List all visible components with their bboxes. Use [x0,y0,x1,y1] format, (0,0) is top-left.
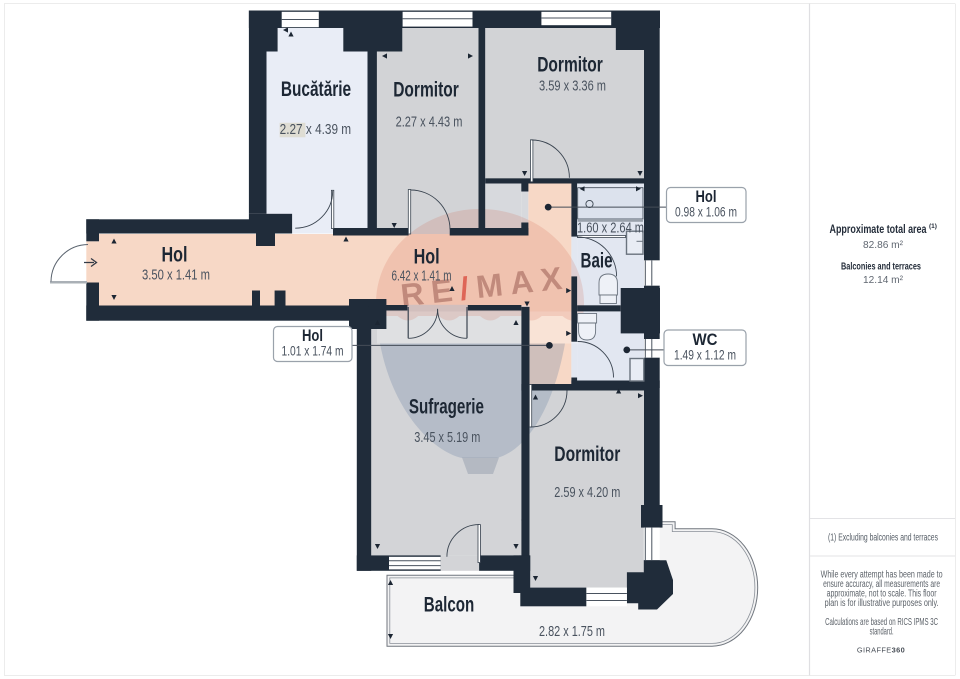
svg-text:6.42 x 1.41 m: 6.42 x 1.41 m [392,269,452,285]
svg-text:Approximate total area: Approximate total area [830,222,927,236]
svg-text:Dormitor: Dormitor [537,54,603,77]
svg-text:Baie: Baie [581,250,613,273]
svg-text:82.86 m²: 82.86 m² [863,239,903,251]
svg-text:Balconies and terraces: Balconies and terraces [841,261,921,273]
svg-text:Hol: Hol [162,244,188,267]
svg-text:Balcon: Balcon [424,594,475,617]
svg-text:Hol: Hol [302,327,323,345]
svg-text:Dormitor: Dormitor [393,79,459,102]
svg-text:3.50 x 1.41 m: 3.50 x 1.41 m [142,268,210,284]
svg-text:plan is for illustrative purpo: plan is for illustrative purposes only. [825,598,939,609]
svg-text:Hol: Hol [696,188,717,206]
svg-text:Dormitor: Dormitor [554,443,620,466]
svg-text:3.45 x 5.19 m: 3.45 x 5.19 m [414,430,480,446]
svg-text:12.14 m²: 12.14 m² [863,274,903,286]
svg-text:1.01 x 1.74 m: 1.01 x 1.74 m [282,344,344,359]
svg-text:2.59 x 4.20 m: 2.59 x 4.20 m [554,485,620,501]
svg-text:GIRAFFE360: GIRAFFE360 [857,646,905,655]
svg-text:1.60 x 2.64 m: 1.60 x 2.64 m [577,221,644,237]
svg-text:2.27 x 4.43 m: 2.27 x 4.43 m [396,115,463,131]
svg-text:Hol: Hol [414,246,440,269]
svg-text:WC: WC [693,331,718,349]
svg-text:(1) Excluding balconies and te: (1) Excluding balconies and terraces [828,533,938,544]
svg-text:2.27 x 4.39 m: 2.27 x 4.39 m [280,122,352,138]
svg-text:standard.: standard. [870,626,894,637]
svg-text:0.98 x 1.06 m: 0.98 x 1.06 m [675,205,737,220]
svg-text:1.49 x 1.12 m: 1.49 x 1.12 m [674,348,736,363]
svg-text:Bucătărie: Bucătărie [281,78,351,101]
svg-text:(1): (1) [929,223,937,230]
svg-text:2.82 x 1.75 m: 2.82 x 1.75 m [539,624,605,640]
svg-text:Sufragerie: Sufragerie [409,396,484,419]
svg-text:3.59 x 3.36 m: 3.59 x 3.36 m [539,79,606,95]
